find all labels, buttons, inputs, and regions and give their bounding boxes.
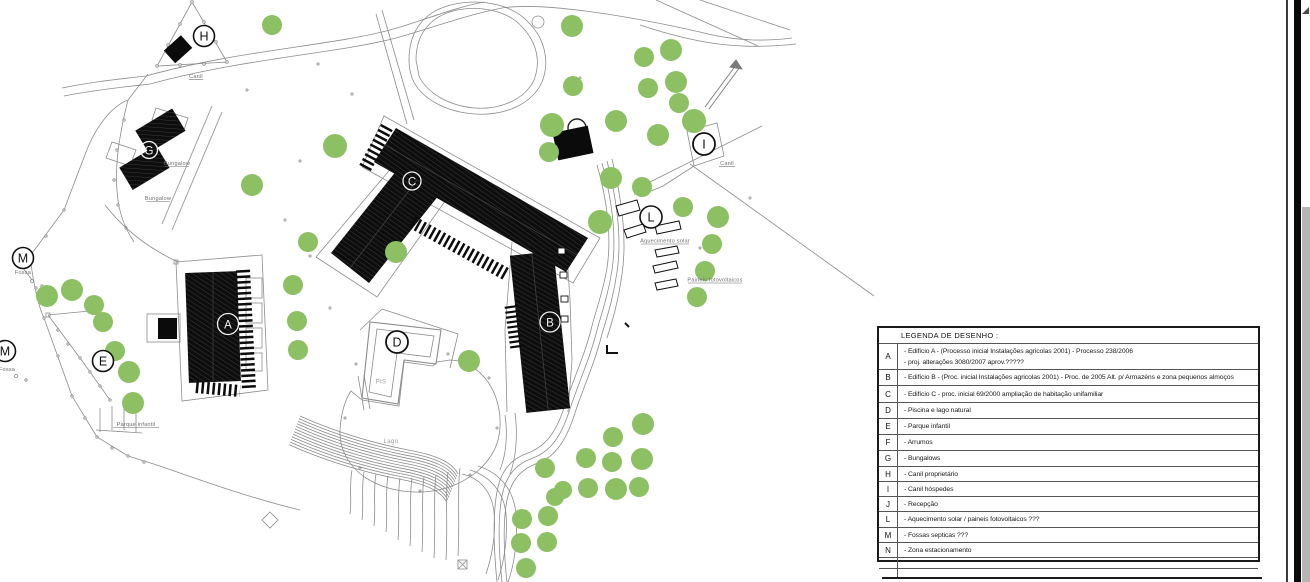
svg-text:I: I [702,138,705,152]
canil-label-2: Canil [720,161,734,167]
plan-label-d: D [386,331,408,353]
svg-text:M: M [0,345,10,359]
svg-text:D: D [392,336,401,350]
legend-table: LEGENDA DE DESENHO : A - Edifício A - (P… [877,326,1260,562]
paineis-fotovoltaicos-label: Paineis fotovoltaicos [687,278,742,284]
aquecimento-solar-label: Aquecimento solar [640,239,690,245]
canil-label-1: Canil [189,74,203,80]
direction-arrow-icon [705,60,742,109]
fossa-label-1: Fossa [15,270,32,276]
plan-label-m1: M [13,248,34,269]
svg-text:G: G [145,146,154,158]
scrollbar-track[interactable] [1302,207,1310,582]
fossa-label-2: Fossa [0,367,16,373]
plan-label-h: H [194,26,215,47]
svg-text:E: E [99,355,107,369]
legend-row-key: A [879,344,898,369]
legend-row-l: L - Aquecimento solar / paineis fotovolt… [879,512,1258,528]
legend-row-h: H - Canil proprietário [879,467,1258,482]
lago-label: Lago [384,439,399,445]
sheet-border-bar [1294,0,1301,582]
legend-row-text: - proj. alterações 3080/2007 aprov.????? [904,357,1258,368]
legend-row-m: M - Fossas septicas ??? [879,528,1258,543]
plan-label-l: L [640,206,662,228]
legend-row-i: I - Canil hóspedes [879,482,1258,497]
parque-infantil-label: Parque infantil [117,422,156,428]
bungalow-label-2: Bungalow [145,196,172,202]
legend-row-g: G - Bungalows [879,451,1258,467]
pis-label: PIS [376,380,387,386]
legend-row-d: D - Piscina e lago natural [879,403,1258,419]
svg-text:A: A [224,320,232,332]
svg-text:H: H [199,30,208,44]
legend-row-a: A - Edifício A - (Processo inicial Insta… [879,344,1258,370]
building-f-arrumos [158,318,177,339]
legend-row-n: N - Zona estacionamento [879,543,1258,558]
legend-row-e: E - Parque infantil [879,419,1258,435]
building-h-canil [164,35,192,63]
building-c-wing-2 [331,165,439,283]
drawing-frame-line [882,577,1262,579]
legend-row-j: J - Recepção [879,497,1258,512]
buildings [119,35,629,413]
plan-label-i: I [693,133,715,155]
sheet-border-line [1286,0,1288,582]
legend-title: LEGENDA DE DESENHO : [879,328,1258,344]
plan-label-m2: M [0,341,16,362]
legend-row-f: F - Arrumos [879,435,1258,451]
drawing-viewer: H G A C B D E I [0,0,1310,582]
bungalow-label-1: Bungalow [164,161,191,167]
legend-row-text: - Edifício A - (Processo inicial Instala… [904,346,1258,357]
svg-text:B: B [546,318,554,330]
trees [36,15,729,578]
svg-text:C: C [408,177,416,189]
contour-and-boundary-lines [15,0,875,582]
legend-row-b: B - Edifício B - (Proc. inicial Instalaç… [879,370,1258,386]
scroll-corner-icon[interactable] [1302,7,1309,14]
legend-row-c: C - Edifício C - proc. inicial 69/2000 a… [879,386,1258,403]
plan-label-e: E [93,351,114,372]
svg-text:L: L [648,211,655,225]
legend-row-empty-1 [879,558,1258,569]
svg-text:M: M [18,252,28,266]
